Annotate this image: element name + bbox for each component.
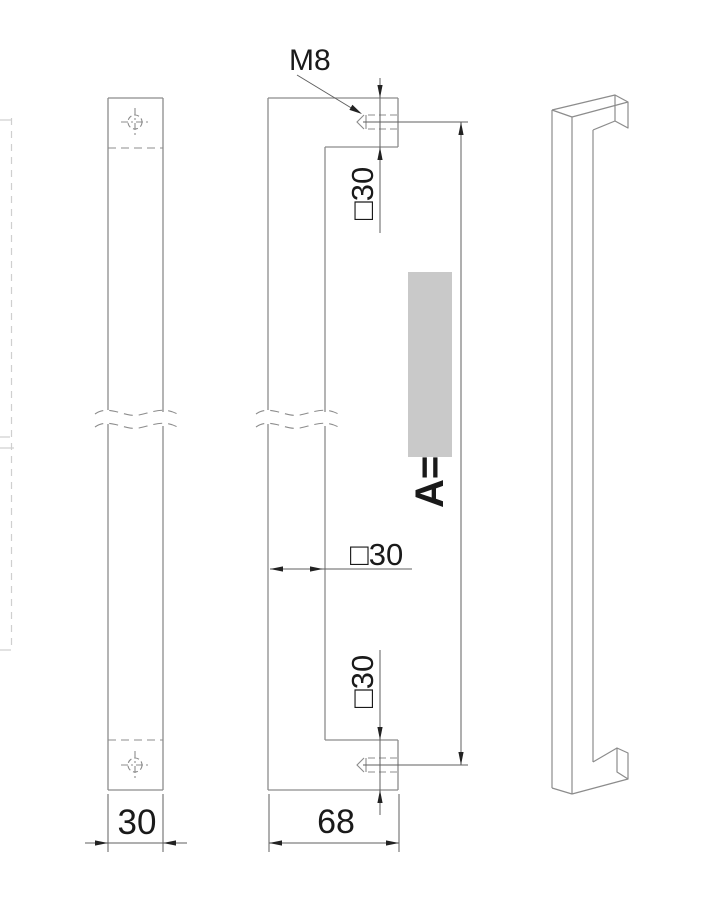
arrow-m8-leader xyxy=(349,105,362,114)
top-hole-center-mark-icon xyxy=(121,108,149,136)
arrow-bottom-foot-up xyxy=(377,790,382,803)
iso-bottom-arm-bottom-edge xyxy=(572,779,628,794)
left-view-hidden-edges xyxy=(108,148,163,740)
arrow-68-left xyxy=(269,840,282,845)
front-bar-break-upper xyxy=(256,410,340,415)
iso-bar-bottom-front-edge xyxy=(552,788,572,794)
arrow-top-foot-down xyxy=(377,85,382,98)
dim-grip-section-label: □30 xyxy=(350,537,403,572)
dim-hole-distance-label: A= xyxy=(408,456,452,508)
arrow-68-right xyxy=(386,840,399,845)
dim-front-depth-label: 68 xyxy=(317,803,355,841)
iso-bar-top-front-edge xyxy=(552,110,572,117)
dim-bottom-foot-label: □30 xyxy=(345,655,380,708)
iso-top-arm-bottom-edge xyxy=(593,121,615,130)
page-fold-marks xyxy=(0,118,14,650)
dim-top-foot-label: □30 xyxy=(345,167,380,220)
iso-bottom-arm-top-edge xyxy=(593,748,617,762)
iso-bottom-arm-end-cap xyxy=(617,748,628,779)
arrow-grip-left xyxy=(270,566,283,571)
break-lines xyxy=(95,410,340,428)
iso-top-arm-near-edge xyxy=(572,102,628,117)
arrow-grip-right xyxy=(310,566,323,571)
arrow-30-right xyxy=(163,840,176,845)
arrow-a-top xyxy=(458,122,463,135)
arrow-top-foot-up xyxy=(377,147,382,160)
left-bar-break-upper xyxy=(95,410,179,415)
iso-view xyxy=(552,95,628,794)
iso-top-arm-end-cap xyxy=(615,95,628,128)
drawing-labels: M8 □30 □30 □30 A= 30 68 xyxy=(118,44,452,842)
arrow-a-bottom xyxy=(458,752,463,765)
drawing-sheet: M8 □30 □30 □30 A= 30 68 xyxy=(0,0,719,907)
thread-size-label: M8 xyxy=(289,44,331,77)
handle-technical-drawing: M8 □30 □30 □30 A= 30 68 xyxy=(0,0,719,907)
m8-leader-line xyxy=(297,75,353,109)
variable-length-highlight xyxy=(408,272,452,457)
arrow-bottom-foot-down xyxy=(377,727,382,740)
bottom-hole-center-mark-icon xyxy=(121,751,149,779)
arrow-30-left xyxy=(95,840,108,845)
dim-side-width-label: 30 xyxy=(118,803,157,842)
hole-center-marks xyxy=(121,108,149,779)
left-view-outline xyxy=(108,98,163,790)
